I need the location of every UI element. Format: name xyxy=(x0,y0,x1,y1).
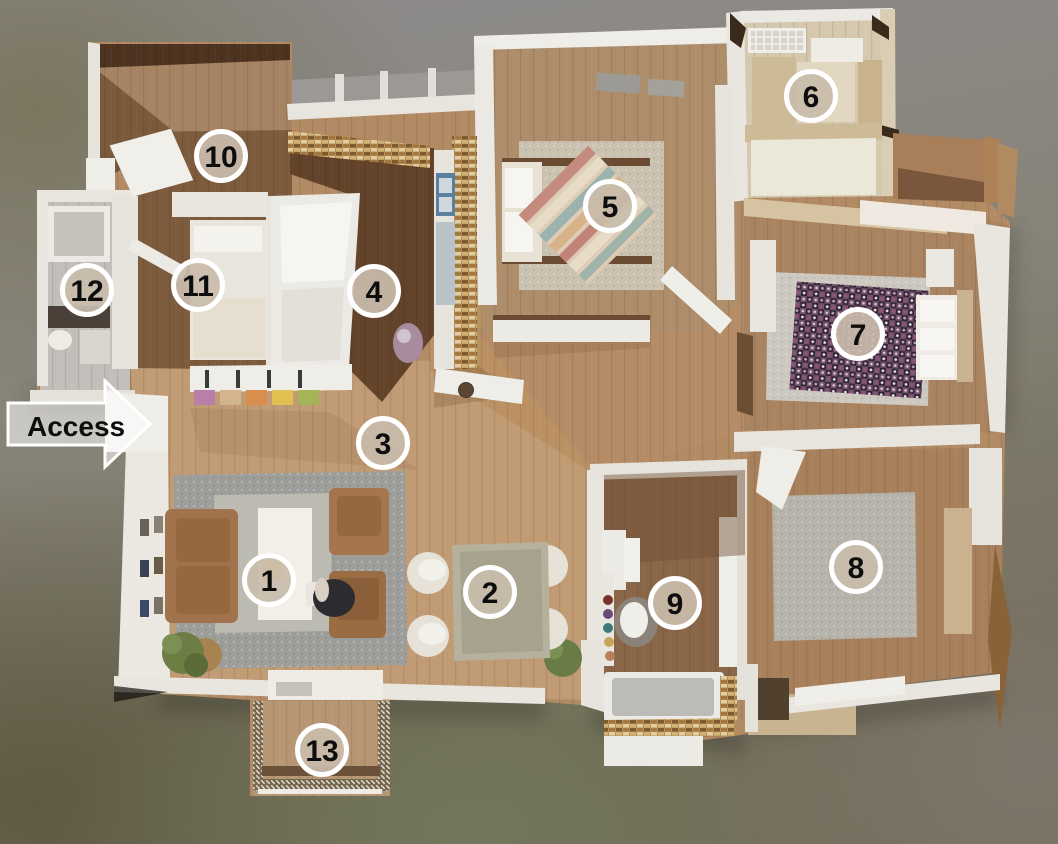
svg-text:2: 2 xyxy=(482,577,499,610)
svg-text:6: 6 xyxy=(803,81,820,114)
svg-text:11: 11 xyxy=(182,270,214,303)
svg-text:8: 8 xyxy=(848,552,865,585)
svg-text:13: 13 xyxy=(305,735,338,768)
svg-text:4: 4 xyxy=(366,276,383,309)
svg-text:12: 12 xyxy=(70,275,103,308)
svg-text:3: 3 xyxy=(375,428,392,461)
svg-text:Access: Access xyxy=(27,411,125,442)
svg-text:5: 5 xyxy=(602,191,619,224)
svg-text:1: 1 xyxy=(261,565,278,598)
svg-text:7: 7 xyxy=(850,319,867,352)
svg-text:9: 9 xyxy=(667,588,684,621)
svg-text:10: 10 xyxy=(204,141,237,174)
